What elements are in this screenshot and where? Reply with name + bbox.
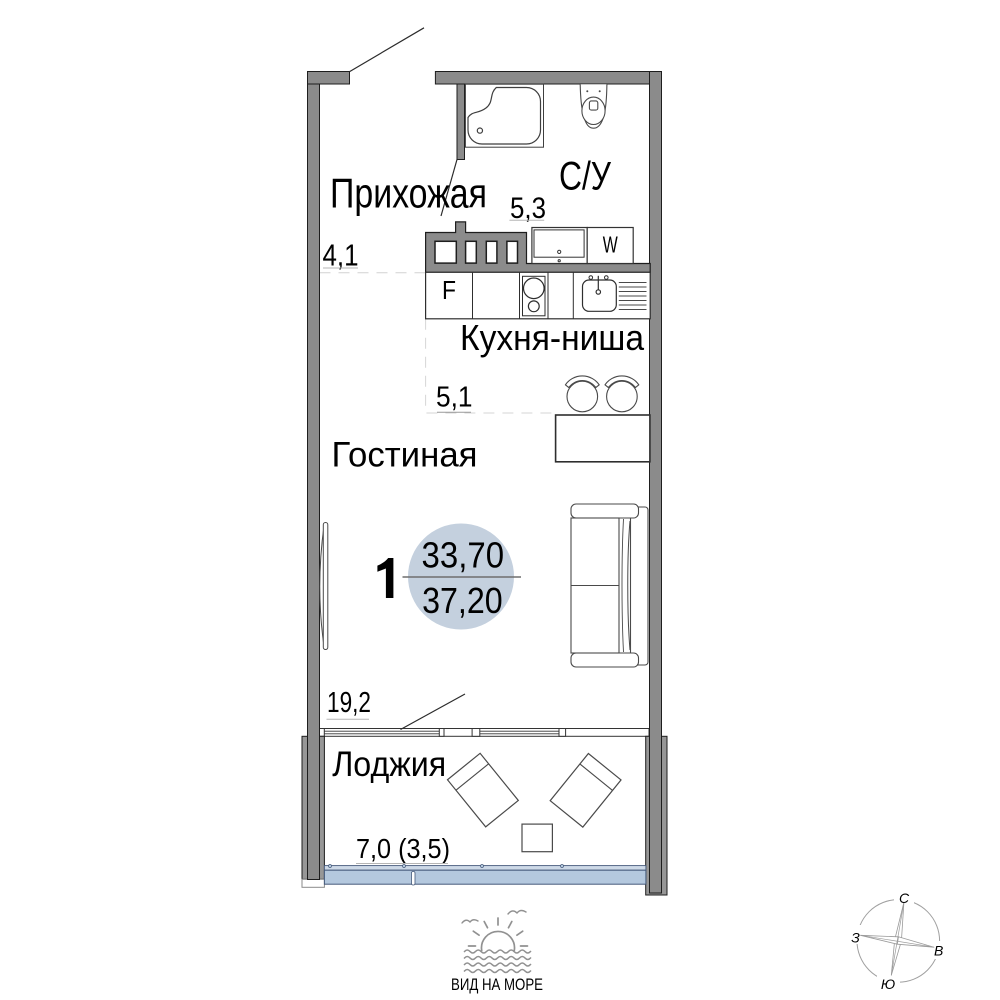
svg-text:ВИД НА МОРЕ: ВИД НА МОРЕ [451,975,543,994]
svg-text:F: F [442,275,456,305]
svg-text:19,2: 19,2 [327,687,371,719]
svg-text:Кухня-ниша: Кухня-ниша [460,317,645,358]
svg-text:7,0 (3,5): 7,0 (3,5) [356,833,450,864]
svg-text:Прихожая: Прихожая [330,169,487,216]
svg-text:33,70: 33,70 [422,534,505,575]
svg-text:W: W [603,231,618,257]
svg-text:С/У: С/У [559,154,612,198]
svg-text:С: С [899,890,910,906]
svg-text:Ю: Ю [881,976,895,992]
svg-text:37,20: 37,20 [422,580,503,621]
svg-text:Лоджия: Лоджия [332,745,446,784]
svg-text:В: В [934,943,943,959]
svg-text:Гостиная: Гостиная [332,436,478,475]
svg-text:З: З [851,929,860,945]
svg-text:5,1: 5,1 [436,382,473,414]
